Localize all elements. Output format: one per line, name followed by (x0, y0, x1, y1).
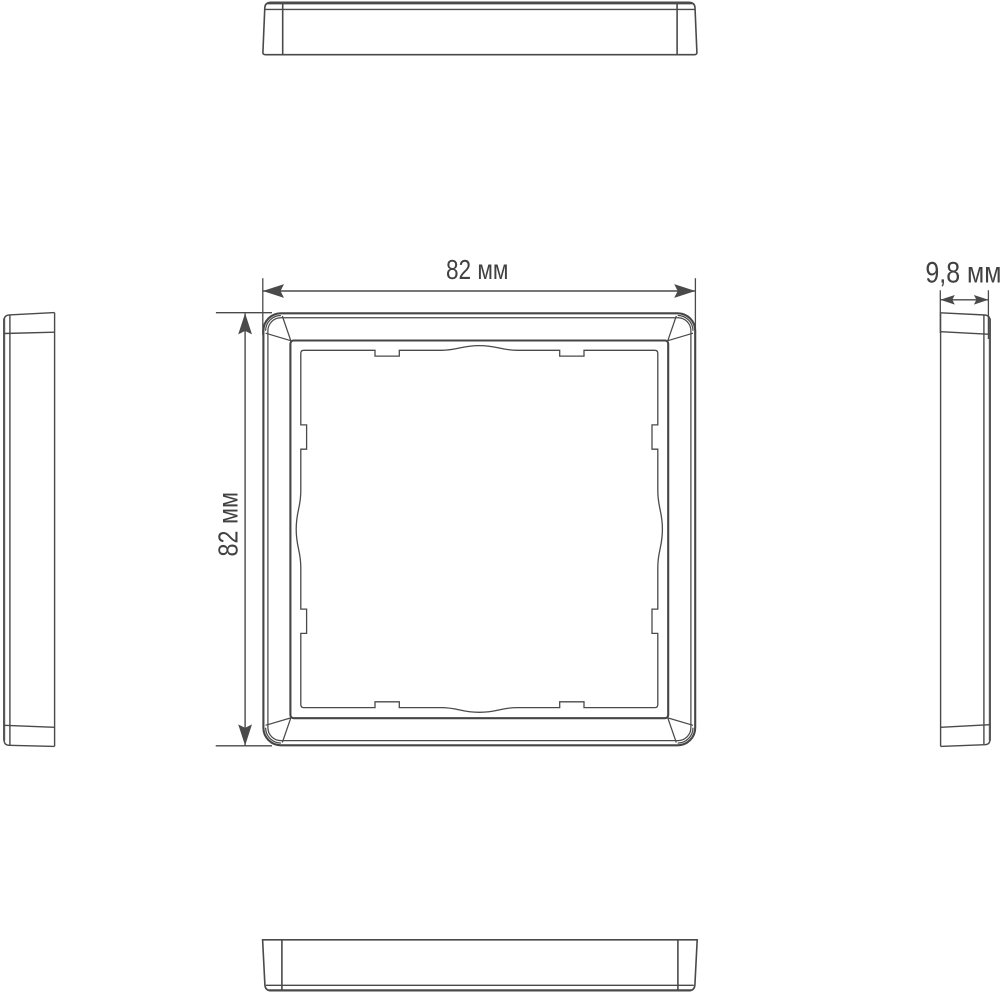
svg-text:82 мм: 82 мм (212, 492, 243, 557)
svg-text:9,8 мм: 9,8 мм (925, 257, 1000, 290)
svg-text:82 мм: 82 мм (446, 254, 509, 285)
